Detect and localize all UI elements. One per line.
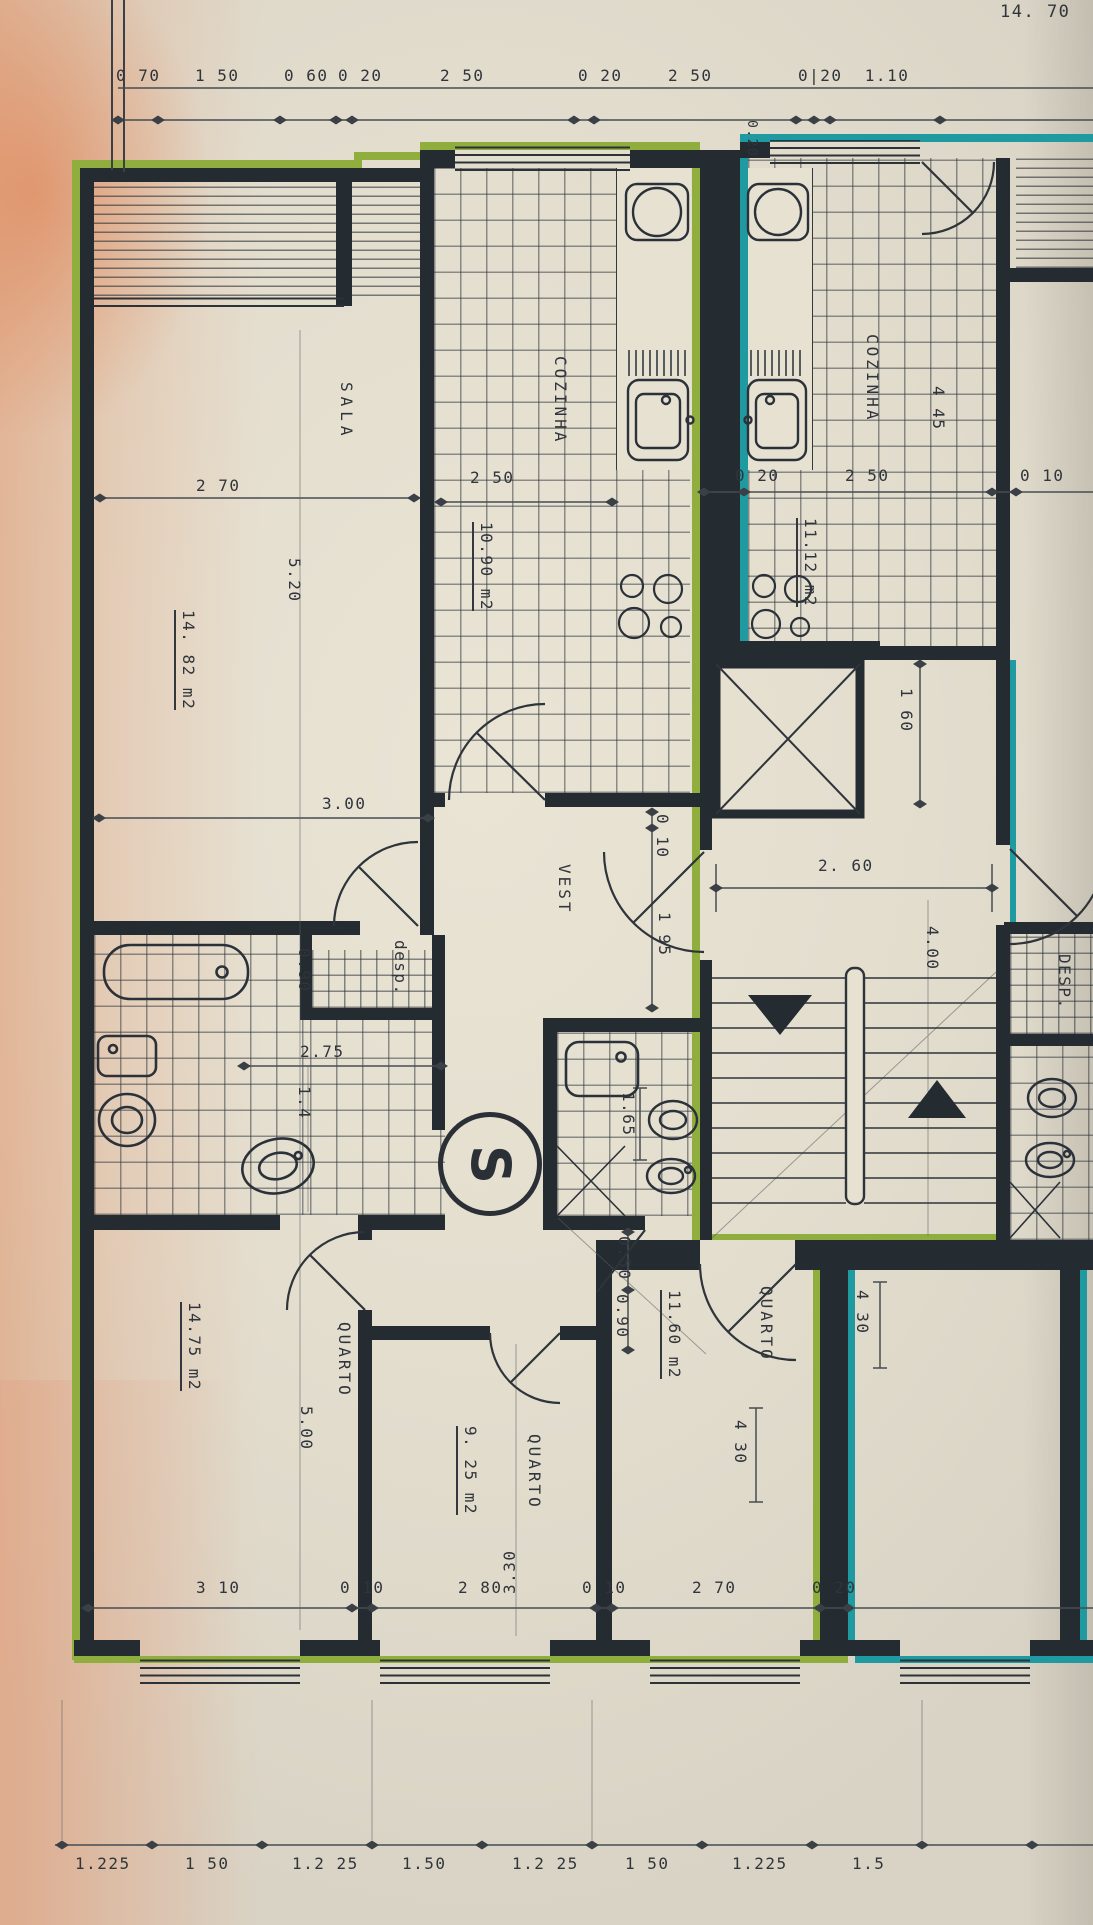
area-q1: 14.75 m2: [180, 1302, 202, 1391]
floorplan-sheet: S 14. 70 0 70 1 50 0 60 0 20 2 50 0 20 2…: [0, 0, 1093, 1925]
dim-q1-depth: 5.00: [298, 1406, 314, 1451]
dim-wc2-2: 0.90: [614, 1294, 630, 1339]
bidet-wcr-icon: [1026, 1143, 1074, 1177]
dim-cozr-2: 0 10: [1020, 468, 1065, 484]
dim-cozr-1: 2 50: [845, 468, 890, 484]
staircase: [712, 968, 996, 1204]
dim-top-1: 1 50: [195, 68, 240, 84]
room-label-q3: QUARTO: [758, 1286, 774, 1362]
room-label-cozinha-left: COZINHA: [552, 356, 568, 444]
bidet-main-icon: [237, 1132, 319, 1200]
dim-bath-wid: 1.4: [296, 1086, 312, 1119]
dim-scale-7: 1.5: [852, 1856, 885, 1872]
area-q3: 11.60 m2: [660, 1290, 682, 1379]
door-swings: [287, 162, 1093, 1403]
dim-top-2: 0 60: [284, 68, 329, 84]
dim-sala-depth: 5.20: [286, 558, 302, 603]
dim-cozr-0: 0 20: [735, 468, 780, 484]
dim-bottom-0: 3 10: [196, 1580, 241, 1596]
sink-right-icon: [745, 380, 807, 460]
dim-wc2-1: 0.50: [616, 1236, 632, 1281]
dim-desp-width: 0.90: [296, 948, 312, 993]
dim-top-4: 2 50: [440, 68, 485, 84]
dim-bottom-5: 0 20: [812, 1580, 857, 1596]
room-label-desp-right: DESP.: [1056, 954, 1072, 1010]
dim-q2-depth: 3.30: [502, 1549, 518, 1594]
room-label-vest: VEST: [556, 864, 572, 915]
dim-vest-2: 1 95: [656, 912, 672, 957]
dim-wc2-len: 1.65: [620, 1092, 636, 1137]
dim-top-6: 2 50: [668, 68, 713, 84]
dim-scale-5: 1 50: [625, 1856, 670, 1872]
corner-hatch-wcr: [1010, 1182, 1060, 1238]
dim-scale-3: 1.50: [402, 1856, 447, 1872]
dim-q4-depth: 4 30: [854, 1290, 870, 1335]
room-label-cozinha-right: COZINHA: [864, 334, 880, 422]
room-label-q1: QUARTO: [336, 1322, 352, 1398]
toilet-main-icon: [98, 1036, 156, 1146]
dim-top-7: 0|20 1.10: [798, 68, 909, 84]
toilet-wc2-icon: [649, 1101, 697, 1139]
washbasin-wc2-icon: [566, 1042, 638, 1096]
sheet-border-lines: [112, 0, 124, 172]
toilet-wcr-icon: [1028, 1079, 1076, 1117]
unit-mark-letter: S: [459, 1145, 522, 1184]
bathtub-icon: [104, 945, 248, 999]
dim-scale-6: 1.225: [732, 1856, 788, 1872]
water-heater-left-icon: [626, 184, 688, 240]
dim-top-0: 0 70: [116, 68, 161, 84]
dim-scale-4: 1.2 25: [512, 1856, 579, 1872]
overall-dim: 14. 70: [1000, 4, 1070, 21]
dim-bottom-2: 2 80: [458, 1580, 503, 1596]
sink-left-icon: [628, 380, 694, 460]
dim-bath-len: 2.75: [300, 1044, 345, 1060]
dim-vest-1: 0 10: [654, 814, 670, 859]
unit-mark-circle: S: [438, 1112, 542, 1216]
area-cozr: 11.12 m2: [796, 518, 818, 607]
dim-sala-width2: 3.00: [322, 796, 367, 812]
dim-q3-depth: 4 30: [732, 1420, 748, 1465]
dim-cozr-depth: 4 45: [930, 386, 946, 431]
dim-landing: 2. 60: [818, 858, 874, 874]
stair-direction-arrow2-icon: [908, 1080, 966, 1118]
elevator-shaft: [716, 664, 860, 814]
dim-bottom-4: 2 70: [692, 1580, 737, 1596]
dim-bottom-1: 0 10: [340, 1580, 385, 1596]
water-heater-right-icon: [748, 184, 808, 240]
dim-core-depth: 4.00: [924, 926, 940, 971]
dim-scale-1: 1 50: [185, 1856, 230, 1872]
area-q2: 9. 25 m2: [456, 1426, 478, 1515]
dim-scale-2: 1.2 25: [292, 1856, 359, 1872]
dim-sala-width: 2 70: [196, 478, 241, 494]
dim-cozr-niche: 1 60: [898, 688, 914, 733]
dim-scale-0: 1.225: [75, 1856, 131, 1872]
room-label-q2: QUARTO: [526, 1434, 542, 1510]
room-label-desp: desp.: [392, 940, 408, 996]
area-cozl: 10.90 m2: [472, 522, 494, 611]
dim-bottom-3: 0 10: [582, 1580, 627, 1596]
bidet-wc2-icon: [647, 1159, 695, 1193]
stove-left-icon: [619, 575, 682, 638]
stair-direction-arrow-icon: [748, 995, 812, 1035]
dim-cozl-width: 2 50: [470, 470, 515, 486]
room-label-sala: SALA: [338, 382, 354, 441]
dim-party-top: 0.20: [745, 120, 758, 157]
dim-top-3: 0 20: [338, 68, 383, 84]
area-sala: 14. 82 m2: [174, 610, 196, 710]
dim-top-5: 0 20: [578, 68, 623, 84]
shower-corner-wc2: [557, 1146, 625, 1216]
